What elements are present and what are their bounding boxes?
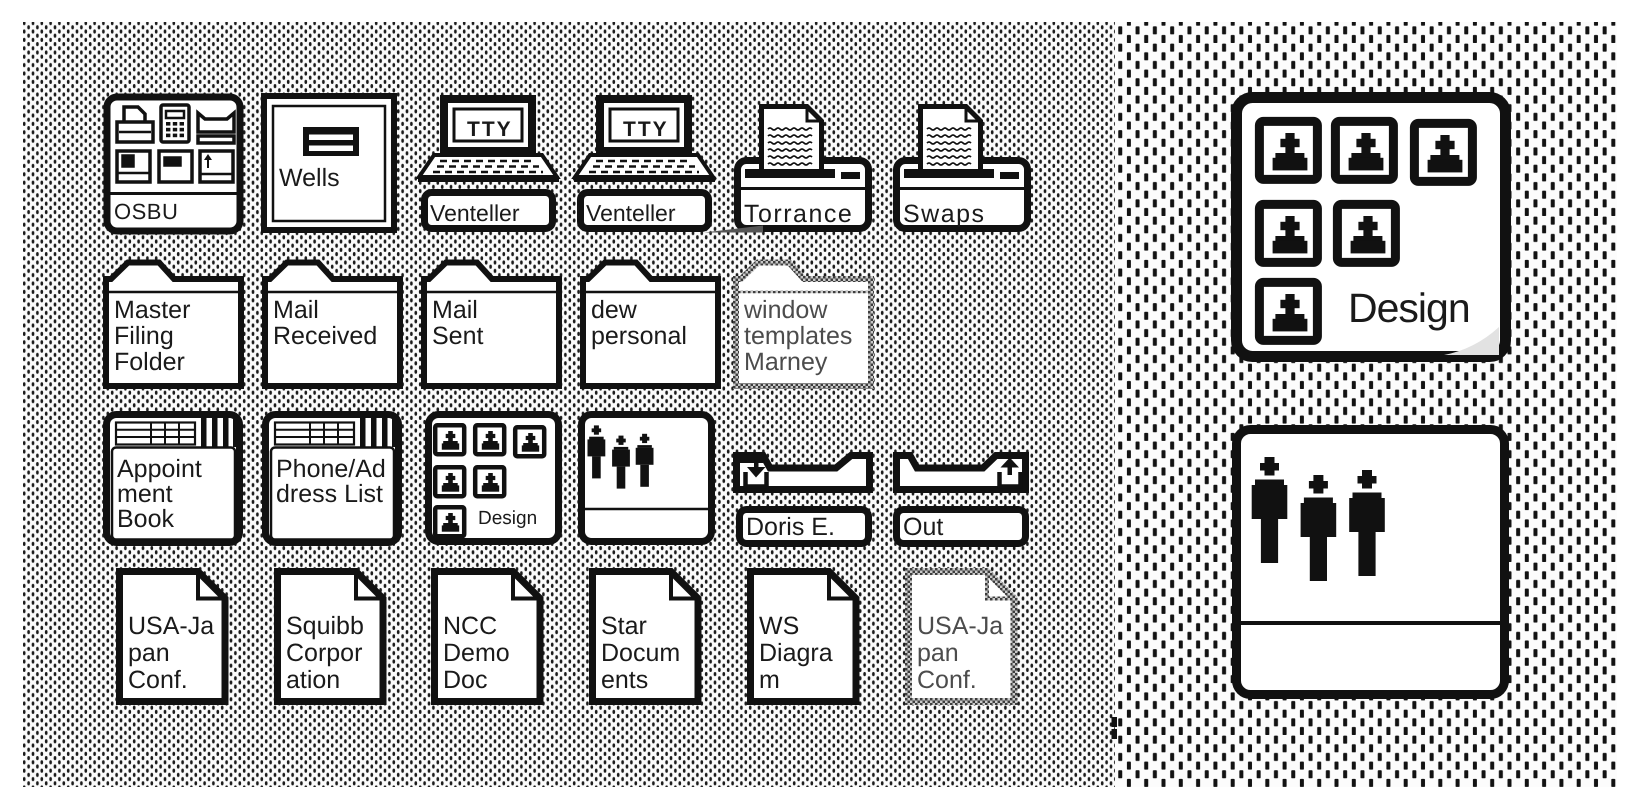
svg-text:TTY: TTY (467, 118, 513, 141)
svg-text:pan: pan (128, 639, 170, 667)
svg-text:Corpor: Corpor (286, 639, 362, 667)
svg-text:Master: Master (114, 296, 190, 324)
svg-text:Star: Star (601, 612, 647, 640)
svg-text:Swaps: Swaps (903, 200, 986, 228)
svg-text:ation: ation (286, 666, 340, 694)
svg-text:Out: Out (903, 513, 943, 541)
svg-text:Marney: Marney (744, 348, 828, 376)
svg-text:WS: WS (759, 612, 799, 640)
svg-text:ment: ment (117, 480, 173, 508)
svg-text:Doc: Doc (443, 666, 487, 694)
svg-text:TTY: TTY (623, 118, 669, 141)
svg-text:NCC: NCC (443, 612, 497, 640)
svg-text:Demo: Demo (443, 639, 510, 667)
svg-text:ents: ents (601, 666, 648, 694)
svg-text:Squibb: Squibb (286, 612, 364, 640)
svg-text:USA-Ja: USA-Ja (917, 612, 1003, 640)
svg-text:Filing: Filing (114, 322, 174, 350)
svg-text:Design: Design (478, 508, 537, 529)
svg-text:OSBU: OSBU (114, 199, 178, 224)
svg-text:Torrance: Torrance (744, 200, 853, 228)
svg-text:Received: Received (273, 322, 377, 350)
svg-text:pan: pan (917, 639, 959, 667)
svg-text:personal: personal (591, 322, 687, 350)
svg-text:templates: templates (744, 322, 852, 350)
svg-text:Folder: Folder (114, 348, 185, 376)
svg-text:Book: Book (117, 505, 174, 533)
svg-text:Design: Design (1348, 285, 1470, 331)
svg-text:Mail: Mail (273, 296, 319, 324)
svg-text:Diagra: Diagra (759, 639, 833, 667)
svg-text:dew: dew (591, 296, 638, 324)
svg-text:Mail: Mail (432, 296, 478, 324)
svg-text:m: m (759, 666, 780, 694)
svg-text:Conf.: Conf. (128, 666, 188, 694)
svg-text:Phone/Ad: Phone/Ad (276, 455, 386, 483)
svg-text:USA-Ja: USA-Ja (128, 612, 214, 640)
svg-text:dress List: dress List (276, 480, 383, 508)
svg-text:Sent: Sent (432, 322, 483, 350)
svg-text:Venteller: Venteller (430, 200, 520, 226)
svg-text:window: window (743, 296, 828, 324)
svg-text:Appoint: Appoint (117, 455, 202, 483)
svg-text:Wells: Wells (279, 164, 340, 192)
svg-text:Docum: Docum (601, 639, 680, 667)
svg-text:Doris E.: Doris E. (746, 513, 835, 541)
svg-text:Venteller: Venteller (586, 200, 676, 226)
svg-text:Conf.: Conf. (917, 666, 977, 694)
